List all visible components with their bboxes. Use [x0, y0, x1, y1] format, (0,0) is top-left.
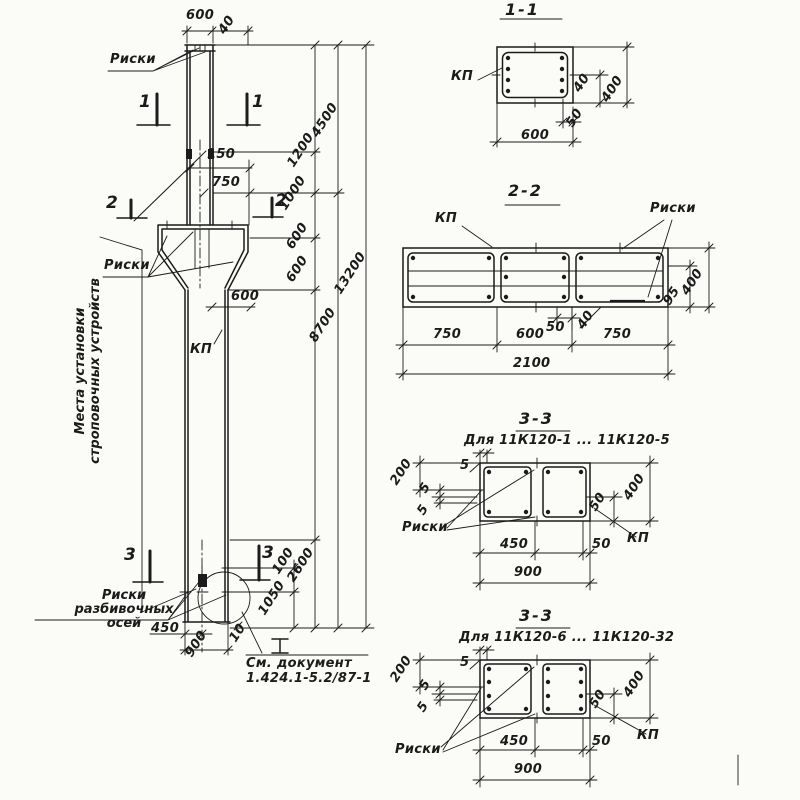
kp-label-1-1: КП: [451, 69, 473, 84]
dim-3-3a-5-top: 5: [460, 458, 469, 473]
riski-label-3-3b: Риски: [395, 742, 441, 757]
riski-console-label: Риски: [104, 258, 150, 273]
dim-1-1-600: 600: [521, 128, 549, 143]
section-mark-3-right: 3: [262, 543, 274, 563]
dim-150: 150: [207, 147, 235, 162]
drawing-sheet: 600 40 Риски 1 1 150 750 2 2 Риски 600 К…: [0, 0, 800, 800]
dim-3-3b-450: 450: [500, 734, 528, 749]
section-mark-1-left: 1: [139, 92, 151, 112]
dim-top-width: 600: [186, 8, 214, 23]
riski-axes-note: Риски разбивочных осей: [68, 589, 180, 631]
section-2-2-title: 2-2: [508, 181, 543, 200]
dim-2-2-600: 600: [516, 327, 544, 342]
strop-places-note: Места установки строповочных устройств: [73, 221, 103, 521]
kp-label-3-3b: КП: [637, 728, 659, 743]
kp-label-elevation: КП: [190, 342, 212, 357]
dim-3-3b-50-bottom: 50: [592, 734, 611, 749]
section-mark-2-left: 2: [106, 193, 118, 213]
kp-label-2-2: КП: [435, 211, 457, 226]
section-mark-1-right: 1: [252, 92, 264, 112]
doc-reference-line2: 1.424.1-5.2/87-1: [246, 671, 372, 686]
section-3-3a-subtitle: Для 11К120-1 ... 11К120-5: [464, 433, 670, 448]
riski-label-3-3a: Риски: [402, 520, 448, 535]
section-3-3b-title: 3-3: [519, 606, 554, 625]
dim-3-3b-900: 900: [514, 762, 542, 777]
riski-axes-line3: осей: [68, 617, 180, 631]
dim-console-width: 600: [231, 289, 259, 304]
section-3-3b-subtitle: Для 11К120-6 ... 11К120-32: [459, 630, 674, 645]
doc-reference-line1: См. документ: [246, 656, 352, 671]
riski-axes-line1: Риски: [68, 589, 180, 603]
kp-label-3-3a: КП: [627, 531, 649, 546]
dim-3-3a-900: 900: [514, 565, 542, 580]
riski-label-2-2: Риски: [650, 201, 696, 216]
riski-top-label: Риски: [110, 52, 156, 67]
section-3-3a-title: 3-3: [519, 409, 554, 428]
section-mark-3-left: 3: [124, 545, 136, 565]
riski-axes-line2: разбивочных: [68, 603, 180, 617]
strop-note-line1: Места установки: [73, 221, 88, 521]
dim-2-2-750-right: 750: [603, 327, 631, 342]
dim-2-2-750-left: 750: [433, 327, 461, 342]
dim-3-3a-50-bottom: 50: [592, 537, 611, 552]
dim-2-2-50: 50: [546, 320, 565, 335]
section-1-1-title: 1-1: [505, 0, 540, 19]
dim-3-3a-450: 450: [500, 537, 528, 552]
dim-750: 750: [212, 175, 240, 190]
dim-3-3b-5-top: 5: [460, 655, 469, 670]
strop-note-line2: строповочных устройств: [88, 221, 103, 521]
dim-2-2-2100: 2100: [513, 356, 550, 371]
